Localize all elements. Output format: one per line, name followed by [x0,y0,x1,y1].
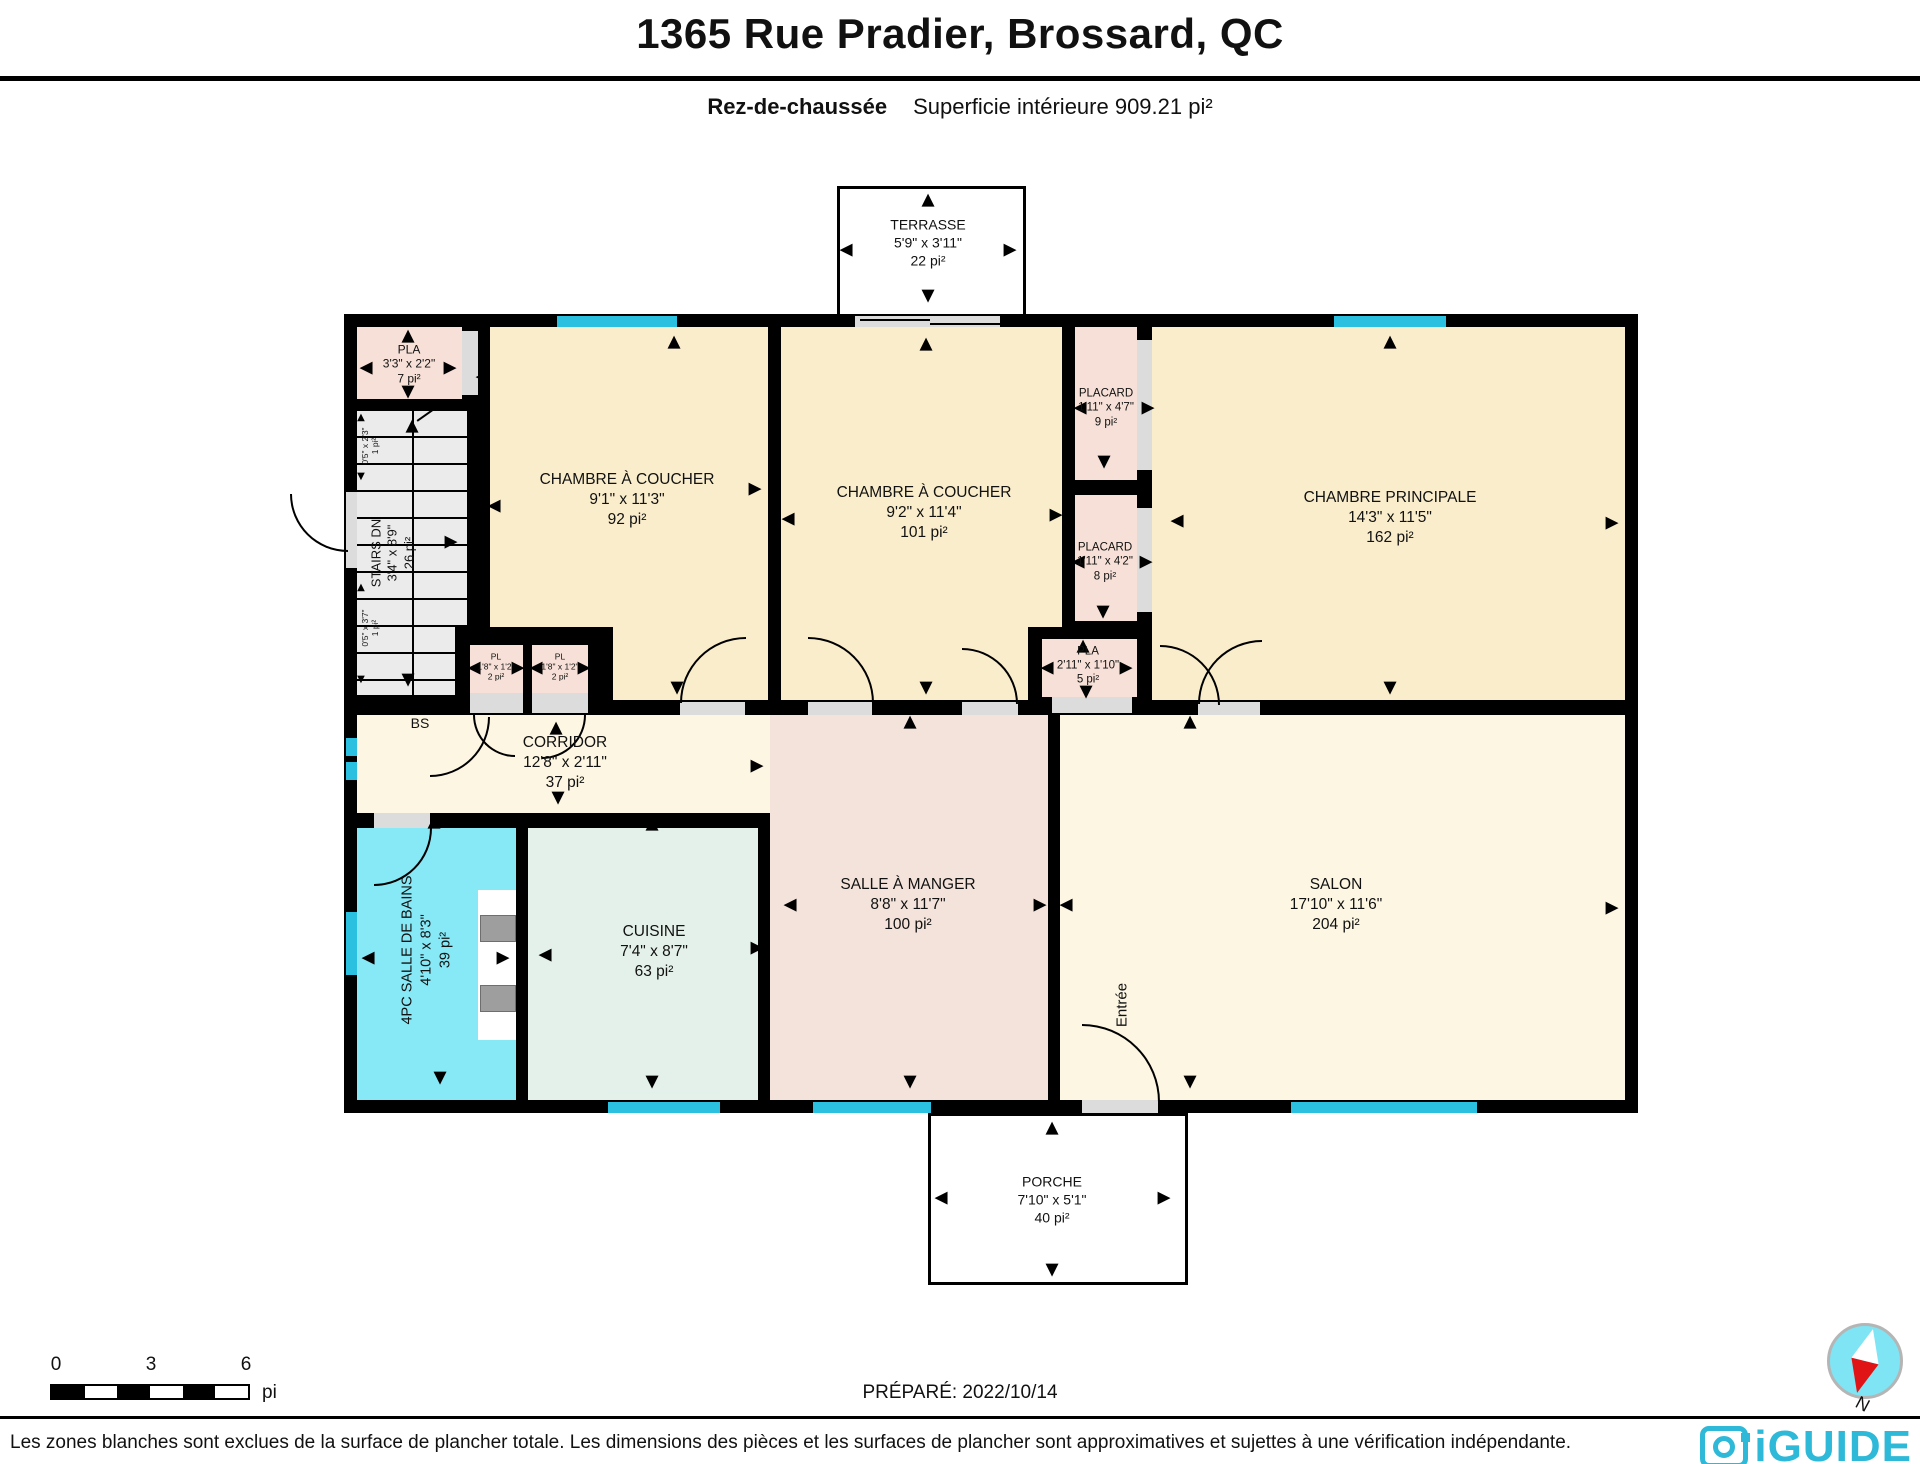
door-opening [1137,340,1152,470]
room-dims: 7'4" x 8'7" [620,942,688,962]
room-area: 9 pi² [1078,415,1134,429]
patio-door-panel [930,323,1000,325]
room-area: 5 pi² [1057,673,1119,687]
door-opening [680,702,745,715]
room-area: 162 pi² [1304,528,1477,548]
room-label-salle-de-bains: 4PC SALLE DE BAINS 4'10" x 8'3" 39 pi² [399,875,456,1024]
floorplan-page: 1365 Rue Pradier, Brossard, QC Rez-de-ch… [0,0,1920,1464]
bathroom-fixture [480,985,516,1012]
room-area: 63 pi² [620,962,688,982]
camera-bump-icon [1741,1433,1750,1442]
room-area: 204 pi² [1290,915,1382,935]
room-area: 37 pi² [523,773,607,793]
room-label-terrasse: TERRASSE 5'9" x 3'11" 22 pi² [890,216,965,271]
room-dims: 4'10" x 8'3" [418,875,437,1024]
scale-tick-3: 3 [146,1354,157,1376]
room-name: PLACARD [1078,386,1134,400]
room-area: 100 pi² [840,915,975,935]
entree-label: Entrée [1112,983,1132,1027]
room-dims: 17'10" x 11'6" [1290,895,1382,915]
room-dims: 7'10" x 5'1" [1018,1191,1087,1209]
room-name: SALON [1290,875,1382,895]
room-label-corridor: CORRIDOR 12'8" x 2'11" 37 pi² [523,733,607,793]
room-area: 40 pi² [1018,1209,1087,1227]
prepared-date: PRÉPARÉ: 2022/10/14 [0,1382,1920,1404]
room-name: PL [477,652,514,662]
room-name: CHAMBRE À COUCHER [837,483,1012,503]
door-opening [462,331,478,395]
door-opening [1198,702,1260,715]
window [1334,316,1446,327]
room-name: 4PC SALLE DE BAINS [399,875,418,1024]
room-name: STAIRS DN [369,519,385,587]
room-dims: 14'3" x 11'5" [1304,508,1477,528]
stair-niche-label-bottom: 0'5" x 3'7" 1 pi² [361,609,381,646]
stair-niche-label-top: 0'5" x 2'3" 1 pi² [361,427,381,464]
room-label-stairs: STAIRS DN 3'4" x 8'9" 26 pi² [369,519,418,587]
room-label-porche: PORCHE 7'10" x 5'1" 40 pi² [1018,1173,1087,1228]
room-area: 8 pi² [1077,569,1133,583]
room-area: 2 pi² [477,672,514,682]
room-dims: 5'9" x 3'11" [890,234,965,252]
room-name: PLA [383,342,435,356]
iguide-logo: iGUIDE [1700,1422,1912,1464]
room-label-chambre-1: CHAMBRE À COUCHER 9'1" x 11'3" 92 pi² [540,470,715,530]
room-name: CORRIDOR [523,733,607,753]
disclaimer-text: Les zones blanches sont exclues de la su… [10,1432,1571,1454]
page-title: 1365 Rue Pradier, Brossard, QC [0,10,1920,58]
door-opening [374,813,430,828]
scale-tick-6: 6 [241,1354,252,1376]
window [557,316,677,327]
side-door-opening [346,492,357,568]
room-name: CHAMBRE PRINCIPALE [1304,488,1477,508]
room-area: 101 pi² [837,523,1012,543]
room-dims: 9'1" x 11'3" [540,490,715,510]
room-dims: 2'11" x 1'10" [1057,659,1119,673]
room-name: CHAMBRE À COUCHER [540,470,715,490]
door-swing-arc [290,494,348,552]
entry-door-opening [1082,1100,1158,1113]
niche-area: 1 pi² [371,427,381,464]
patio-door-opening [855,316,1000,327]
room-name: SALLE À MANGER [840,875,975,895]
window [1291,1102,1477,1113]
room-dims: 3'4" x 8'9" [385,519,401,587]
room-label-salle-a-manger: SALLE À MANGER 8'8" x 11'7" 100 pi² [840,875,975,935]
room-label-placard-1: PLACARD 1'11" x 4'7" 9 pi² [1078,386,1134,429]
room-dims: 1'8" x 1'2" [477,662,514,672]
patio-door-panel [860,319,930,321]
room-dims: 9'2" x 11'4" [837,503,1012,523]
window [813,1102,931,1113]
window [346,762,357,780]
room-name: TERRASSE [890,216,965,234]
floor-label: Rez-de-chaussée [707,94,887,120]
scale-tick-0: 0 [51,1354,62,1376]
window [608,1102,720,1113]
room-area: 2 pi² [541,672,578,682]
compass-needles [1827,1323,1903,1399]
bs-label: BS [411,714,430,732]
room-label-pla-mid: PLA 2'11" x 1'10" 5 pi² [1057,645,1119,686]
room-name: PLACARD [1077,540,1133,554]
room-name: PL [541,652,578,662]
door-opening [470,693,523,713]
door-opening [962,702,1018,715]
room-label-pla-top: PLA 3'3" x 2'2" 7 pi² [383,342,435,385]
room-area: 7 pi² [383,371,435,385]
door-opening [1137,508,1152,612]
room-area: 26 pi² [401,519,417,587]
footer-divider [0,1416,1920,1419]
room-label-pl-a: PL 1'8" x 1'2" 2 pi² [477,652,514,683]
room-name: PORCHE [1018,1173,1087,1191]
header-divider [0,76,1920,81]
compass-icon [1827,1323,1903,1399]
room-label-chambre-2: CHAMBRE À COUCHER 9'2" x 11'4" 101 pi² [837,483,1012,543]
bathroom-vanity [478,890,516,1040]
camera-lens-icon [1713,1436,1735,1458]
room-area: 22 pi² [890,252,965,270]
room-dims: 1'11" x 4'2" [1077,555,1133,569]
room-label-salon: SALON 17'10" x 11'6" 204 pi² [1290,875,1382,935]
interior-area-label: Superficie intérieure 909.21 pi² [913,94,1213,120]
room-dims: 12'8" x 2'11" [523,753,607,773]
room-label-chambre-principale: CHAMBRE PRINCIPALE 14'3" x 11'5" 162 pi² [1304,488,1477,548]
room-label-placard-2: PLACARD 1'11" x 4'2" 8 pi² [1077,540,1133,583]
room-dims: 8'8" x 11'7" [840,895,975,915]
room-dims: 3'3" x 2'2" [383,357,435,371]
niche-area: 1 pi² [371,609,381,646]
compass-south-needle [1827,1323,1903,1399]
window [346,738,357,756]
room-name: PLA [1057,645,1119,659]
brand-name: iGUIDE [1754,1422,1912,1464]
room-dims: 1'11" x 4'7" [1078,401,1134,415]
door-opening [808,702,872,715]
floor-subtitle: Rez-de-chaussée Superficie intérieure 90… [0,94,1920,120]
room-label-cuisine: CUISINE 7'4" x 8'7" 63 pi² [620,922,688,982]
window [346,912,357,975]
door-opening [1052,697,1132,713]
room-label-pl-b: PL 1'8" x 1'2" 2 pi² [541,652,578,683]
door-opening [532,693,588,713]
room-area: 39 pi² [436,875,455,1024]
bathroom-fixture [480,915,516,942]
room-name: CUISINE [620,922,688,942]
room-dims: 1'8" x 1'2" [541,662,578,672]
room-area: 92 pi² [540,510,715,530]
camera-icon [1700,1426,1748,1464]
